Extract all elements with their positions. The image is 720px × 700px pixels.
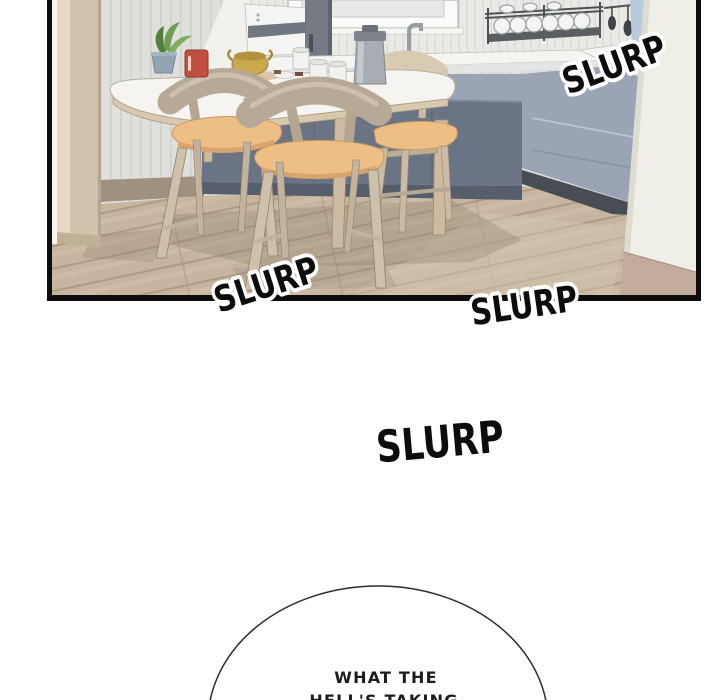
speech-text-line-1: WHAT THE	[334, 668, 438, 687]
speech-text-line-2: HELL'S TAKING	[309, 691, 458, 700]
pitcher	[354, 25, 386, 84]
sfx-text: SLURP	[374, 412, 506, 474]
door-frame	[52, 0, 101, 247]
kitchen-scene-illustration	[52, 0, 696, 295]
comic-panel	[47, 0, 701, 301]
webtoon-page: { "page": { "kind": "webtoon comic page"…	[0, 0, 720, 700]
sfx-slurp-middle: SLURP	[345, 391, 535, 491]
speech-bubble: WHAT THE HELL'S TAKING	[190, 580, 570, 700]
red-radio	[185, 50, 208, 77]
